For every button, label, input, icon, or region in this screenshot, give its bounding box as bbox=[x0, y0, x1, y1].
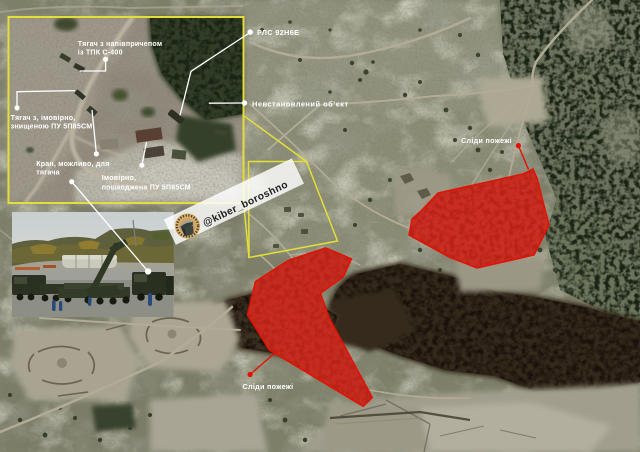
svg-text:Сліди пожежі: Сліди пожежі bbox=[243, 382, 294, 391]
svg-text:Тягач з напівпричепом: Тягач з напівпричепом bbox=[78, 40, 162, 48]
svg-text:тягача: тягача bbox=[36, 169, 60, 177]
svg-text:РЛС 92Н6Е: РЛС 92Н6Е bbox=[257, 28, 299, 37]
svg-text:Сліди пожежі: Сліди пожежі bbox=[461, 136, 512, 145]
svg-text:із ТПК С-400: із ТПК С-400 bbox=[78, 49, 123, 57]
svg-text:Імовірно,: Імовірно, bbox=[102, 174, 137, 182]
svg-text:Кран, можливо, для: Кран, можливо, для bbox=[36, 160, 109, 168]
svg-text:Тягач з, імовірно,: Тягач з, імовірно, bbox=[11, 114, 76, 122]
svg-text:Невстановлений обʼєкт: Невстановлений обʼєкт bbox=[252, 100, 349, 109]
svg-text:пошкоджена ПУ 5П85СМ: пошкоджена ПУ 5П85СМ bbox=[102, 184, 191, 192]
svg-text:знищеною ПУ 5П85СМ: знищеною ПУ 5П85СМ bbox=[11, 122, 93, 130]
